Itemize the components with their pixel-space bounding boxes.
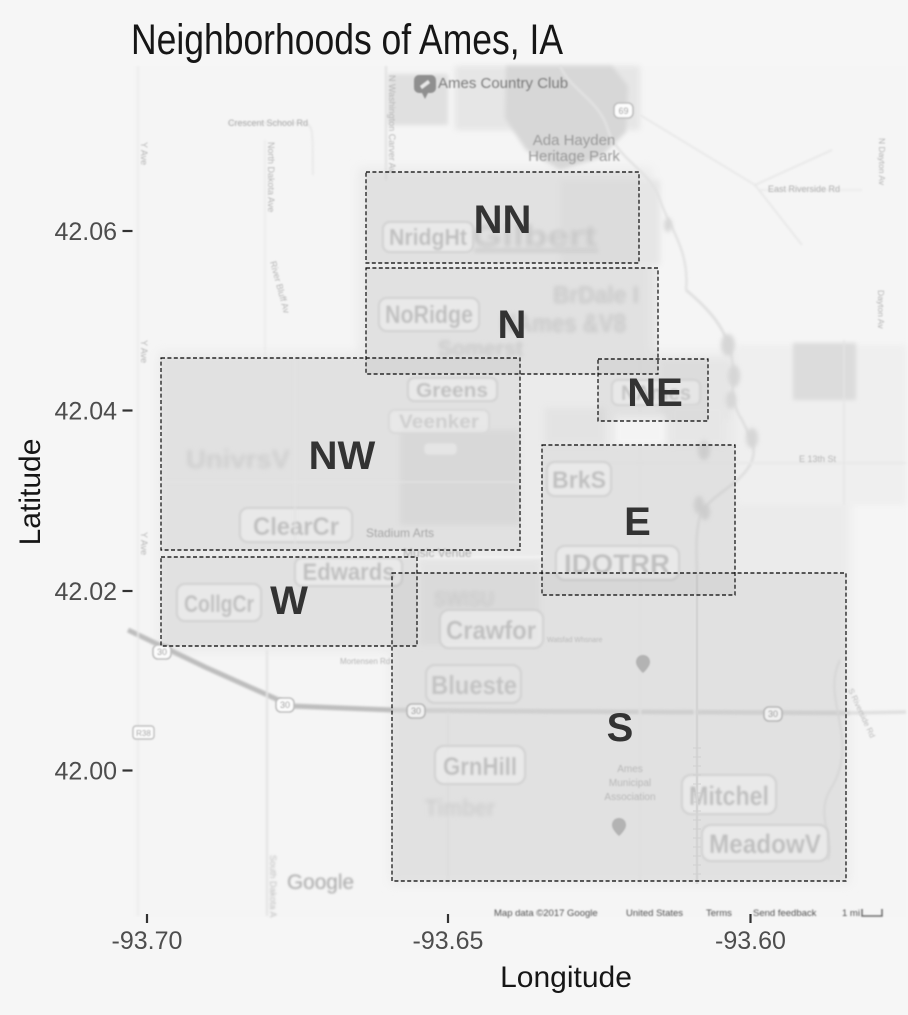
svg-text:NN: NN [474,198,532,242]
svg-text:Map data ©2017 Google: Map data ©2017 Google [494,908,598,919]
svg-text:South Dakota A: South Dakota A [268,855,278,918]
svg-text:United States: United States [626,908,683,919]
svg-text:W: W [270,579,308,623]
svg-text:Ada Hayden: Ada Hayden [533,132,616,149]
svg-text:Heritage Park: Heritage Park [528,148,620,165]
svg-text:R38: R38 [136,729,151,738]
svg-text:NW: NW [309,434,376,478]
svg-text:North Dakota Ave: North Dakota Ave [266,142,276,212]
svg-text:Dayton Av: Dayton Av [876,290,886,329]
svg-text:Send feedback: Send feedback [753,908,817,919]
svg-text:NE: NE [627,371,683,415]
svg-text:42.06: 42.06 [54,218,117,246]
svg-text:-93.70: -93.70 [112,927,183,955]
svg-text:1 mi: 1 mi [842,908,860,919]
svg-text:Latitude: Latitude [14,439,47,546]
svg-text:Longitude: Longitude [500,961,632,994]
svg-text:N Washington Carver Av: N Washington Carver Av [387,75,397,174]
svg-text:42.02: 42.02 [54,578,117,606]
svg-text:30: 30 [157,647,167,657]
svg-text:30: 30 [280,700,290,710]
svg-text:Y Ave: Y Ave [139,340,149,363]
svg-text:Mortensen Rd: Mortensen Rd [340,657,390,666]
svg-text:-93.65: -93.65 [413,927,484,955]
svg-text:-93.60: -93.60 [715,927,786,955]
svg-text:Terms: Terms [706,908,732,919]
svg-text:42.04: 42.04 [54,398,117,426]
svg-text:E 13th St: E 13th St [799,454,837,464]
svg-text:42.00: 42.00 [54,758,117,786]
svg-text:N: N [498,303,527,347]
svg-text:Crescent School Rd: Crescent School Rd [228,118,308,128]
svg-text:Y Ave: Y Ave [139,532,149,555]
svg-text:N Dayton Av: N Dayton Av [877,138,887,186]
svg-text:East Riverside Rd: East Riverside Rd [768,184,840,194]
svg-text:Google: Google [287,871,354,894]
svg-text:S: S [607,706,634,750]
svg-text:69: 69 [618,106,628,116]
svg-text:Neighborhoods of Ames, IA: Neighborhoods of Ames, IA [131,16,563,64]
svg-text:E: E [624,500,651,544]
svg-text:Y Ave: Y Ave [139,142,149,165]
svg-text:Ames Country Club: Ames Country Club [438,75,568,92]
